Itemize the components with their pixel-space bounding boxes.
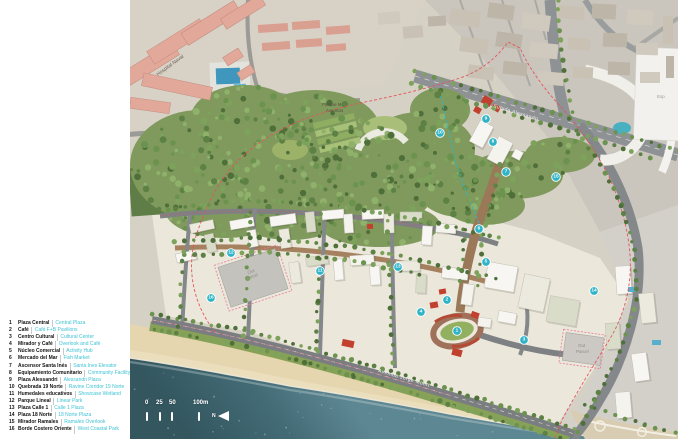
legend-item: 12 Parque Lineal Linear Park bbox=[9, 398, 129, 405]
svg-text:5: 5 bbox=[485, 259, 488, 265]
legend-item: 4 Mirador y Café Overlook and Café bbox=[9, 341, 129, 348]
map-marker-15: 15 bbox=[552, 173, 561, 182]
legend-item-name-en: Central Plaza bbox=[52, 320, 86, 327]
svg-text:4: 4 bbox=[420, 309, 423, 315]
map-marker-6: 6 bbox=[475, 225, 484, 234]
legend-item-name-es: Plaza 18 Norte bbox=[18, 412, 52, 419]
svg-text:9: 9 bbox=[485, 116, 488, 122]
masterplan-sheet: Hospital Naval Parque M. Asientos Subida… bbox=[0, 0, 678, 439]
legend-item-name-es: Mercado del Mar bbox=[18, 355, 57, 362]
svg-text:14: 14 bbox=[591, 288, 597, 294]
legend-item-number: 5 bbox=[9, 348, 18, 355]
legend-item-name-en: Alessandri Plaza bbox=[60, 377, 101, 384]
map-marker-1: 1 bbox=[453, 327, 462, 336]
legend-item: 13 Plaza Calle 1 Calle 1 Plaza bbox=[9, 405, 129, 412]
masterplan-map: Hospital Naval Parque M. Asientos Subida… bbox=[130, 0, 678, 439]
legend-item-name-en: Showcase Wetland bbox=[75, 391, 121, 398]
scale-label-50: 50 bbox=[169, 400, 176, 406]
map-marker-4: 4 bbox=[417, 308, 426, 317]
svg-text:6: 6 bbox=[478, 226, 481, 232]
map-marker-11: 11 bbox=[316, 267, 325, 276]
legend-item: 11 Humedales educativos Showcase Wetland bbox=[9, 391, 129, 398]
scale-tick bbox=[171, 412, 173, 421]
scale-tick bbox=[159, 412, 161, 421]
legend-item: 1 Plaza Central Central Plaza bbox=[9, 320, 129, 327]
legend-item-number: 13 bbox=[9, 405, 18, 412]
legend-item-name-en: Café F+B Pavilions bbox=[31, 327, 77, 334]
legend-item-name-es: Café bbox=[18, 327, 29, 334]
map-marker-3: 3 bbox=[520, 336, 529, 345]
svg-text:8: 8 bbox=[492, 139, 495, 145]
legend-item-name-en: Ramales Overlook bbox=[61, 419, 106, 426]
north-arrow-icon bbox=[218, 411, 229, 421]
esp-label: Esp bbox=[657, 94, 665, 99]
legend-item: 5 Núcleo Comercial Activity Hub bbox=[9, 348, 129, 355]
map-marker-12: 12 bbox=[227, 249, 236, 258]
map-marker-2: 2 bbox=[443, 296, 452, 305]
map-marker-10: 10 bbox=[436, 129, 445, 138]
legend-item: 14 Plaza 18 Norte 18 Norte Plaza bbox=[9, 412, 129, 419]
legend-item-number: 2 bbox=[9, 327, 18, 334]
legend-item-number: 6 bbox=[9, 355, 18, 362]
legend-item-number: 7 bbox=[9, 363, 18, 370]
map-marker-7: 7 bbox=[502, 168, 511, 177]
parque-label-1: Parque M. bbox=[322, 102, 343, 107]
map-marker-13: 13 bbox=[394, 263, 403, 272]
legend-item-name-en: Fish Market bbox=[60, 355, 90, 362]
legend-item-name-es: Quebrada 19 Norte bbox=[18, 384, 63, 391]
legend-item-number: 15 bbox=[9, 419, 18, 426]
legend-item: 2 Café Café F+B Pavilions bbox=[9, 327, 129, 334]
svg-text:10: 10 bbox=[437, 130, 443, 136]
svg-text:2: 2 bbox=[446, 297, 449, 303]
legend-item: 16 Borde Costero Oriente West Coastal Pa… bbox=[9, 426, 129, 433]
scale-tick bbox=[146, 412, 148, 421]
scale-label-100m: 100m bbox=[193, 400, 208, 406]
legend-item-name-es: Plaza Calle 1 bbox=[18, 405, 48, 412]
legend-item-number: 4 bbox=[9, 341, 18, 348]
svg-text:3: 3 bbox=[523, 337, 526, 343]
legend-item: 10 Quebrada 19 Norte Ravine Corridor 19 … bbox=[9, 384, 129, 391]
legend-item-name-en: Cultural Center bbox=[57, 334, 94, 341]
legend-item-name-en: Community Facility bbox=[84, 370, 130, 377]
legend-item: 15 Mirador Ramales Ramales Overlook bbox=[9, 419, 129, 426]
north-label: N bbox=[212, 413, 216, 419]
parque-label-2: Asientos bbox=[326, 108, 344, 113]
legend-item-number: 14 bbox=[9, 412, 18, 419]
legend-list: 1 Plaza Central Central Plaza 2 Café Caf… bbox=[9, 320, 129, 434]
legend-item: 6 Mercado del Mar Fish Market bbox=[9, 355, 129, 362]
svg-text:12: 12 bbox=[228, 250, 234, 256]
legend-item-name-en: Linear Park bbox=[53, 398, 82, 405]
legend-item-name-en: Activity Hub bbox=[63, 348, 93, 355]
legend-item-name-es: Humedales educativos bbox=[18, 391, 72, 398]
out-parcel-label-2a: Out bbox=[578, 343, 586, 348]
scale-bar: 0 25 50 100m N bbox=[142, 400, 242, 428]
legend-item-name-en: 18 Norte Plaza bbox=[55, 412, 92, 419]
scale-tick bbox=[198, 412, 200, 421]
map-marker-9: 9 bbox=[482, 115, 491, 124]
legend-item: 7 Ascensor Santa Inés Santa Ines Elevato… bbox=[9, 363, 129, 370]
legend-item-name-es: Equipamiento Comunitario bbox=[18, 370, 82, 377]
legend: 1 Plaza Central Central Plaza 2 Café Caf… bbox=[9, 320, 129, 434]
svg-text:11: 11 bbox=[317, 268, 322, 274]
legend-item-number: 8 bbox=[9, 370, 18, 377]
legend-item-name-es: Plaza Alessandri bbox=[18, 377, 58, 384]
legend-item-name-en: West Coastal Park bbox=[74, 426, 119, 433]
scale-label-25: 25 bbox=[156, 400, 163, 406]
legend-item-number: 3 bbox=[9, 334, 18, 341]
out-parcel-label-2b: Parcel bbox=[576, 349, 589, 354]
legend-item-number: 12 bbox=[9, 398, 18, 405]
legend-item-number: 16 bbox=[9, 426, 18, 433]
legend-item-number: 10 bbox=[9, 384, 18, 391]
scale-label-0: 0 bbox=[145, 400, 148, 406]
legend-item-name-es: Centro Cultural bbox=[18, 334, 54, 341]
map-marker-14: 14 bbox=[590, 287, 599, 296]
legend-item-number: 1 bbox=[9, 320, 18, 327]
legend-item: 9 Plaza Alessandri Alessandri Plaza bbox=[9, 377, 129, 384]
legend-item-name-en: Calle 1 Plaza bbox=[51, 405, 84, 412]
legend-item-name-es: Parque Lineal bbox=[18, 398, 51, 405]
legend-item-name-es: Ascensor Santa Inés bbox=[18, 363, 67, 370]
legend-item-name-en: Ravine Corridor 19 Norte bbox=[65, 384, 124, 391]
legend-item-name-es: Núcleo Comercial bbox=[18, 348, 60, 355]
svg-text:1: 1 bbox=[456, 328, 459, 334]
legend-item-name-es: Plaza Central bbox=[18, 320, 49, 327]
legend-item: 3 Centro Cultural Cultural Center bbox=[9, 334, 129, 341]
legend-item-name-en: Santa Ines Elevator bbox=[70, 363, 117, 370]
map-marker-16: 16 bbox=[207, 294, 216, 303]
legend-item-number: 9 bbox=[9, 377, 18, 384]
svg-text:13: 13 bbox=[395, 264, 401, 270]
svg-text:7: 7 bbox=[505, 169, 508, 175]
map-marker-5: 5 bbox=[482, 258, 491, 267]
legend-item: 8 Equipamiento Comunitario Community Fac… bbox=[9, 370, 129, 377]
legend-item-number: 11 bbox=[9, 391, 18, 398]
svg-text:15: 15 bbox=[553, 174, 559, 180]
legend-item-name-es: Borde Costero Oriente bbox=[18, 426, 72, 433]
legend-item-name-en: Overlook and Café bbox=[55, 341, 100, 348]
legend-item-name-es: Mirador Ramales bbox=[18, 419, 58, 426]
legend-item-name-es: Mirador y Café bbox=[18, 341, 53, 348]
svg-text:16: 16 bbox=[208, 295, 214, 301]
map-marker-8: 8 bbox=[489, 138, 498, 147]
